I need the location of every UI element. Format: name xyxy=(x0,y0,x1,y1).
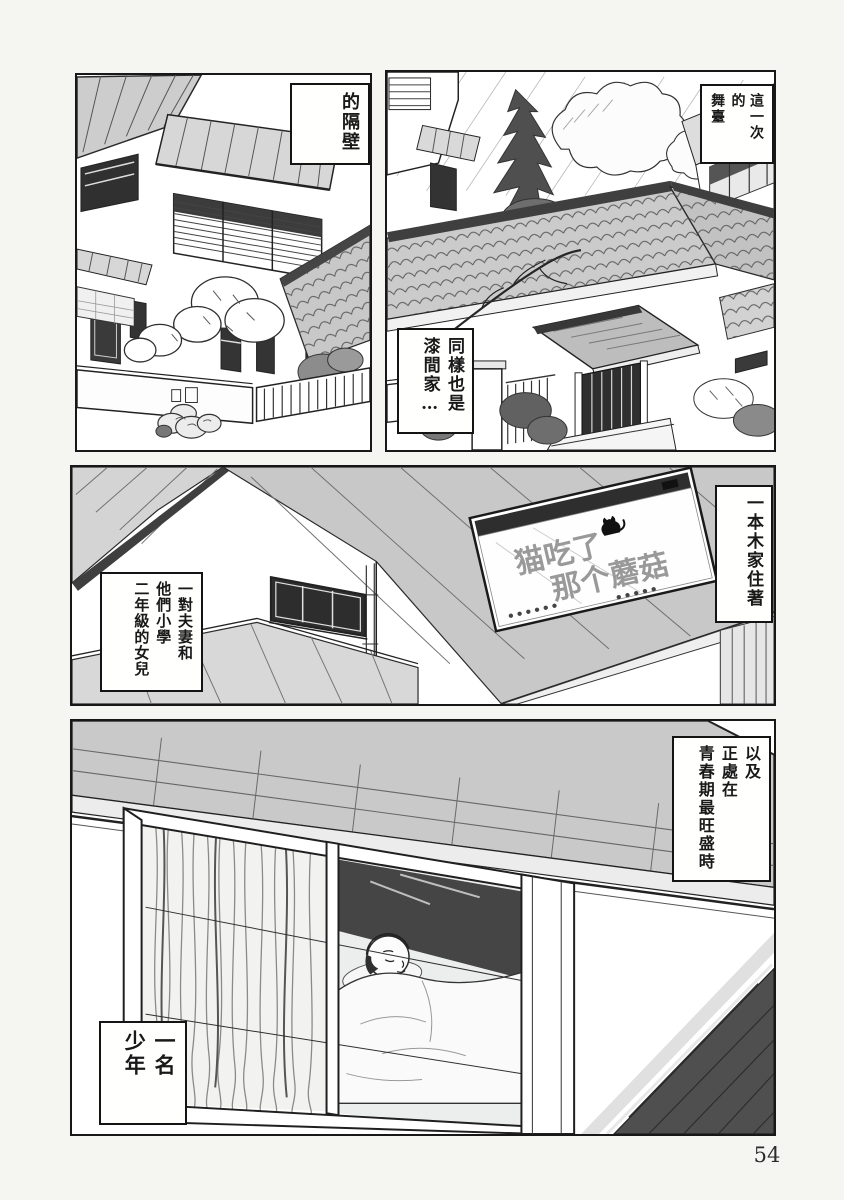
caption-same-house: 同樣也是 漆間家… xyxy=(397,328,474,434)
caption-next-door: 的隔壁 xyxy=(290,83,370,165)
manga-page: 猫吃了 那个蘑菇 xyxy=(0,0,844,1200)
caption-text: 同樣也是 xyxy=(443,337,465,425)
caption-one-boy: 一名 少年 xyxy=(99,1021,187,1125)
caption-text: 正處在 xyxy=(718,745,739,873)
caption-text: 舞臺 xyxy=(708,93,726,155)
caption-this-time-stage: 這一次的 舞臺 xyxy=(700,84,774,164)
caption-text: 他們小學 xyxy=(152,581,172,683)
caption-puberty: 以及 正處在 青春期最旺盛時 xyxy=(672,736,771,882)
page-number: 54 xyxy=(742,1143,792,1167)
caption-text: 的隔壁 xyxy=(337,92,361,156)
caption-text: 漆間家… xyxy=(418,337,440,425)
caption-text: 以及 xyxy=(741,745,762,873)
caption-text: 青春期最旺盛時 xyxy=(695,745,716,873)
caption-text: 這一次的 xyxy=(728,93,765,155)
caption-ipponmoku-family: 一本木家住著 xyxy=(715,485,773,623)
caption-text: 一本木家住著 xyxy=(742,494,764,614)
caption-text: 一對夫妻和 xyxy=(174,581,194,683)
caption-couple-daughter: 一對夫妻和 他們小學 二年級的女兒 xyxy=(100,572,203,692)
caption-text: 一名 xyxy=(150,1030,178,1116)
caption-text: 少年 xyxy=(121,1030,149,1116)
caption-text: 二年級的女兒 xyxy=(131,581,151,683)
